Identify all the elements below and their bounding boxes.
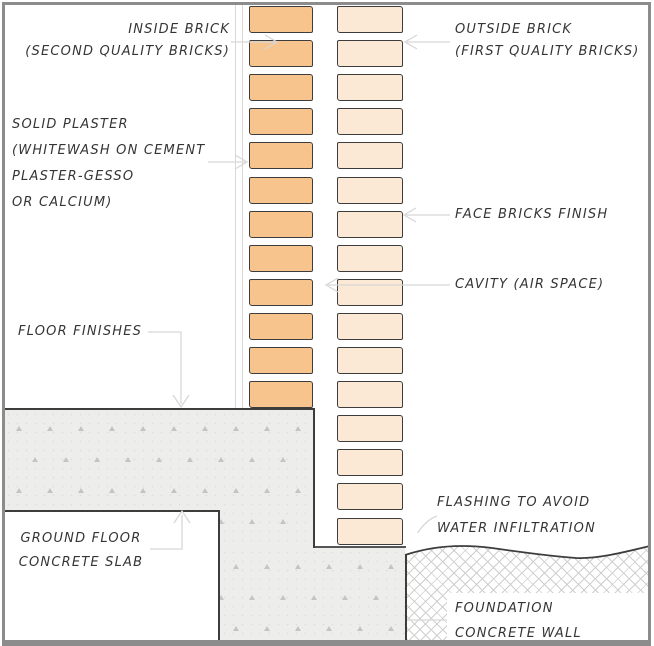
floor-finishes-arrow <box>148 332 189 407</box>
frame-bottom <box>2 640 651 646</box>
aggregate-mark <box>202 426 208 431</box>
aggregate-mark <box>233 564 239 569</box>
label-line: SOLID PLASTER <box>12 112 205 138</box>
aggregate-mark <box>233 626 239 631</box>
brick <box>337 108 403 135</box>
aggregate-mark <box>233 488 239 493</box>
brick <box>249 245 313 272</box>
brick <box>249 142 313 169</box>
plaster-layer-line <box>235 5 236 408</box>
aggregate-mark <box>295 564 301 569</box>
label-inside-brick: INSIDE BRICK (SECOND QUALITY BRICKS) <box>0 19 230 63</box>
aggregate-mark <box>357 626 363 631</box>
aggregate-mark <box>47 488 53 493</box>
label-line: INSIDE BRICK <box>0 19 230 41</box>
aggregate-mark <box>280 519 286 524</box>
aggregate-mark <box>388 564 394 569</box>
architectural-detail-diagram: INSIDE BRICK (SECOND QUALITY BRICKS) OUT… <box>0 0 654 646</box>
brick <box>337 245 403 272</box>
brick <box>337 211 403 238</box>
brick <box>249 108 313 135</box>
aggregate-mark <box>249 457 255 462</box>
label-floor-finishes: FLOOR FINISHES <box>18 324 142 339</box>
label-line: CONCRETE SLAB <box>10 551 152 575</box>
label-line: FOUNDATION <box>455 596 582 621</box>
brick <box>337 142 403 169</box>
aggregate-mark <box>47 426 53 431</box>
label-line: FLASHING TO AVOID <box>437 490 596 516</box>
aggregate-mark <box>357 564 363 569</box>
aggregate-mark <box>202 488 208 493</box>
plaster-layer-line <box>242 5 243 408</box>
aggregate-mark <box>264 626 270 631</box>
label-line: OUTSIDE BRICK <box>455 19 640 41</box>
aggregate-mark <box>140 426 146 431</box>
brick <box>337 483 403 510</box>
aggregate-mark <box>171 426 177 431</box>
aggregate-mark <box>109 426 115 431</box>
aggregate-mark <box>326 626 332 631</box>
aggregate-mark <box>280 595 286 600</box>
brick <box>249 347 313 374</box>
aggregate-mark <box>94 457 100 462</box>
brick <box>249 313 313 340</box>
brick <box>337 279 403 306</box>
label-line: PLASTER-GESSO <box>12 164 205 190</box>
aggregate-mark <box>63 457 69 462</box>
aggregate-mark <box>249 595 255 600</box>
aggregate-mark <box>342 595 348 600</box>
brick <box>337 177 403 204</box>
brick <box>249 279 313 306</box>
brick <box>337 415 403 442</box>
aggregate-mark <box>156 457 162 462</box>
brick <box>337 313 403 340</box>
label-solid-plaster: SOLID PLASTER (WHITEWASH ON CEMENT PLAST… <box>12 112 205 216</box>
label-line: (FIRST QUALITY BRICKS) <box>455 41 640 63</box>
label-foundation-wall: FOUNDATION CONCRETE WALL <box>455 596 582 646</box>
brick <box>337 449 403 476</box>
aggregate-mark <box>233 426 239 431</box>
label-line: (SECOND QUALITY BRICKS) <box>0 41 230 63</box>
brick <box>249 6 313 33</box>
brick <box>337 381 403 408</box>
aggregate-mark <box>78 488 84 493</box>
brick <box>249 211 313 238</box>
aggregate-mark <box>16 488 22 493</box>
aggregate-mark <box>295 488 301 493</box>
aggregate-mark <box>264 426 270 431</box>
aggregate-mark <box>373 595 379 600</box>
brick <box>249 381 313 408</box>
label-cavity: CAVITY (AIR SPACE) <box>455 277 604 292</box>
aggregate-mark <box>311 595 317 600</box>
aggregate-mark <box>295 626 301 631</box>
aggregate-mark <box>326 564 332 569</box>
aggregate-mark <box>264 488 270 493</box>
aggregate-mark <box>140 488 146 493</box>
frame-left <box>2 2 5 642</box>
outside-brick-arrow <box>405 35 450 49</box>
brick <box>337 518 403 545</box>
label-face-bricks-finish: FACE BRICKS FINISH <box>455 207 608 222</box>
brick <box>337 74 403 101</box>
brick <box>249 40 313 67</box>
label-line: (WHITEWASH ON CEMENT <box>12 138 205 164</box>
aggregate-mark <box>78 426 84 431</box>
frame-right <box>648 2 651 642</box>
brick <box>337 6 403 33</box>
label-line: OR CALCIUM) <box>12 190 205 216</box>
brick <box>337 40 403 67</box>
label-line: WATER INFILTRATION <box>437 516 596 542</box>
frame-top <box>2 2 651 5</box>
brick <box>249 74 313 101</box>
face-bricks-arrow <box>404 208 450 222</box>
brick <box>249 177 313 204</box>
aggregate-mark <box>125 457 131 462</box>
aggregate-mark <box>264 564 270 569</box>
aggregate-mark <box>218 457 224 462</box>
aggregate-mark <box>171 488 177 493</box>
label-ground-floor-slab: GROUND FLOOR CONCRETE SLAB <box>10 527 152 575</box>
label-outside-brick: OUTSIDE BRICK (FIRST QUALITY BRICKS) <box>455 19 640 63</box>
aggregate-mark <box>187 457 193 462</box>
aggregate-mark <box>32 457 38 462</box>
label-flashing: FLASHING TO AVOID WATER INFILTRATION <box>437 490 596 542</box>
aggregate-mark <box>280 457 286 462</box>
aggregate-mark <box>249 519 255 524</box>
aggregate-mark <box>295 426 301 431</box>
aggregate-mark <box>388 626 394 631</box>
aggregate-mark <box>16 426 22 431</box>
aggregate-mark <box>109 488 115 493</box>
label-line: GROUND FLOOR <box>10 527 152 551</box>
brick <box>337 347 403 374</box>
